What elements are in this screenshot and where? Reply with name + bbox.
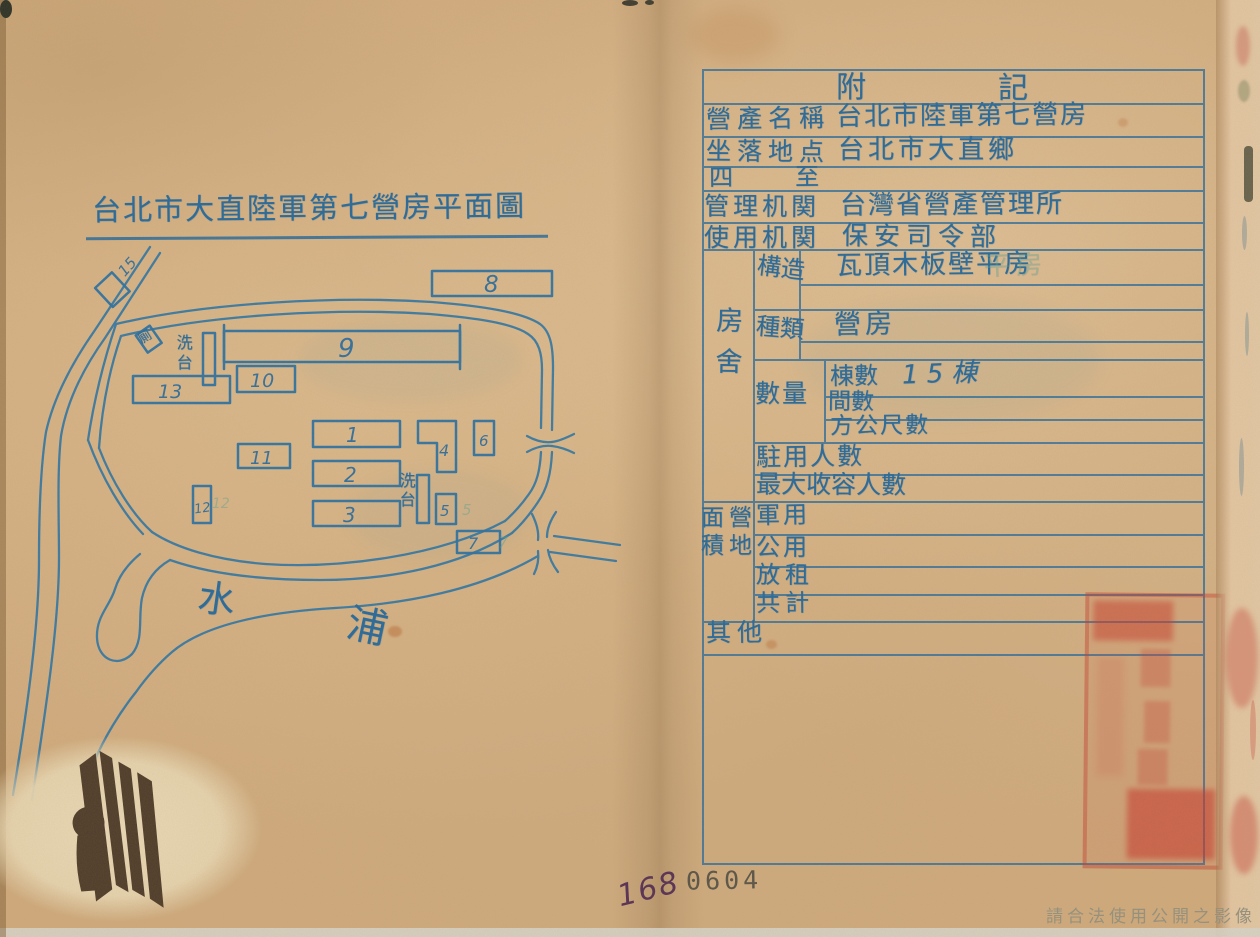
quantity-rooms-label: 間數	[828, 390, 874, 416]
camp-area-section-label: 面營 積地	[701, 504, 761, 560]
property-name-value: 台北市陸軍第七營房	[836, 101, 1088, 132]
building-4-number: 4	[439, 441, 449, 460]
boundaries-label: 四至	[709, 163, 881, 191]
edge-green-mark	[1238, 80, 1250, 102]
building-8-number: 8	[484, 272, 499, 298]
road-left-outer	[13, 247, 150, 795]
building-5-number: 5	[440, 502, 450, 520]
camp-area-label-line1: 面營	[701, 504, 761, 532]
bridge-mark	[547, 512, 556, 537]
stationed-label: 駐用人數	[756, 442, 864, 471]
camp-area-total-label: 共計	[756, 590, 814, 617]
building-10-number: 10	[250, 370, 274, 392]
bridge-mark	[534, 551, 538, 574]
location-value: 台北市大直鄉	[838, 136, 1018, 165]
using-agency-value: 保安司令部	[842, 222, 1002, 252]
building-7-ghost-number: 7	[498, 533, 509, 552]
edge-dark-mark	[1244, 146, 1253, 202]
stream-south-inner	[152, 521, 505, 565]
camp-area-label-line2: 積地	[701, 532, 761, 560]
other-label: 其他	[706, 619, 768, 647]
property-name-label: 營產名稱	[706, 104, 830, 133]
location-label: 坐落地点	[706, 137, 830, 166]
edge-red-mark	[1250, 700, 1256, 760]
structure-label: 構造	[756, 252, 807, 284]
building-12-number: 12	[193, 500, 211, 517]
stream-east-outer	[512, 452, 552, 533]
building-11-number: 11	[250, 448, 273, 469]
building-6-number: 6	[479, 432, 489, 450]
copyright-watermark-text: 請合法使用公開之影像	[1046, 902, 1256, 927]
camp-area-public-label: 公用	[756, 534, 810, 560]
building-9-number: 9	[338, 334, 355, 364]
building-4-outline	[418, 421, 456, 472]
washstand-lower-outline	[417, 475, 429, 523]
next-page-edge	[1216, 0, 1260, 937]
managing-agency-label: 管理机関	[704, 193, 820, 221]
stream-lower-bank	[94, 556, 538, 762]
bridge-mark	[532, 514, 538, 540]
edge-teal-mark	[1239, 438, 1244, 496]
edge-teal-mark	[1242, 216, 1247, 250]
road-east	[554, 536, 620, 545]
quantity-buildings-label: 棟數	[830, 363, 878, 390]
top-edge-speck	[622, 0, 638, 6]
managing-agency-value: 台灣省營產管理所	[840, 190, 1064, 220]
scanned-archive-document: 台北市大直陸軍第七營房平面圖	[0, 0, 1260, 937]
stamp-character-mark	[1140, 649, 1170, 687]
washstand-lower-label: 洗台	[397, 472, 415, 510]
archive-number-stamp: 0604	[686, 865, 763, 895]
stream-hook	[97, 554, 170, 661]
quantity-sqm-label: 方公尺數	[830, 413, 930, 439]
stream-west-inner	[99, 336, 121, 448]
edge-red-stamp-bleed	[1226, 608, 1258, 708]
camp-area-rented-label: 放租	[756, 562, 814, 589]
bridge-mark	[552, 434, 574, 442]
stamp-character-mark	[1137, 749, 1167, 785]
center-fold-shadow	[612, 0, 704, 937]
max-capacity-label: 最大收容人數	[756, 470, 906, 499]
building-1-number: 1	[346, 423, 359, 447]
edge-red-mark	[1236, 26, 1250, 66]
stream-channel-b	[99, 448, 152, 532]
building-5-ghost-number: 5	[462, 501, 472, 519]
washstand-upper-label: 洗台	[174, 334, 192, 374]
building-15-number: 15	[114, 254, 140, 280]
edge-red-stamp-bleed	[1230, 796, 1258, 874]
building-7-number: 7	[468, 534, 479, 553]
using-agency-label: 使用机関	[704, 224, 820, 252]
map-title: 台北市大直陸軍第七營房平面圖	[92, 191, 526, 227]
stamp-smear	[1096, 656, 1125, 776]
stamp-blotch	[1093, 600, 1173, 641]
library-book-logo-icon	[52, 737, 206, 918]
stamp-blotch	[1127, 789, 1216, 860]
building-13-number: 13	[158, 381, 182, 403]
structure-ghost-text: 平房	[984, 251, 1049, 282]
road-east2	[550, 552, 616, 561]
bridge-mark	[527, 436, 552, 442]
bridge-mark	[527, 446, 552, 452]
bridge-mark	[552, 446, 574, 453]
river-label-shui: 水	[195, 578, 237, 623]
scan-bottom-edge	[0, 928, 1260, 937]
top-edge-speck	[0, 0, 12, 18]
top-edge-speck	[645, 0, 654, 5]
building-12-ghost-number: 12	[212, 496, 230, 512]
camp-area-military-label: 軍用	[756, 502, 810, 529]
housing-section-label: 房舍	[710, 306, 741, 389]
stamp-character-mark	[1144, 701, 1170, 743]
type-label: 種類	[755, 313, 805, 343]
stream-east-inner	[505, 452, 541, 521]
stream-channel-a	[88, 440, 143, 534]
edge-teal-mark	[1245, 312, 1249, 356]
quantity-buildings-value: 15棟	[902, 359, 986, 390]
building-3-number: 3	[343, 503, 356, 527]
building-2-number: 2	[344, 463, 357, 487]
red-seal-stamp	[1083, 592, 1226, 869]
type-value: 營房	[834, 309, 897, 340]
building-3-outline	[313, 501, 400, 526]
quantity-label: 數量	[755, 380, 809, 408]
